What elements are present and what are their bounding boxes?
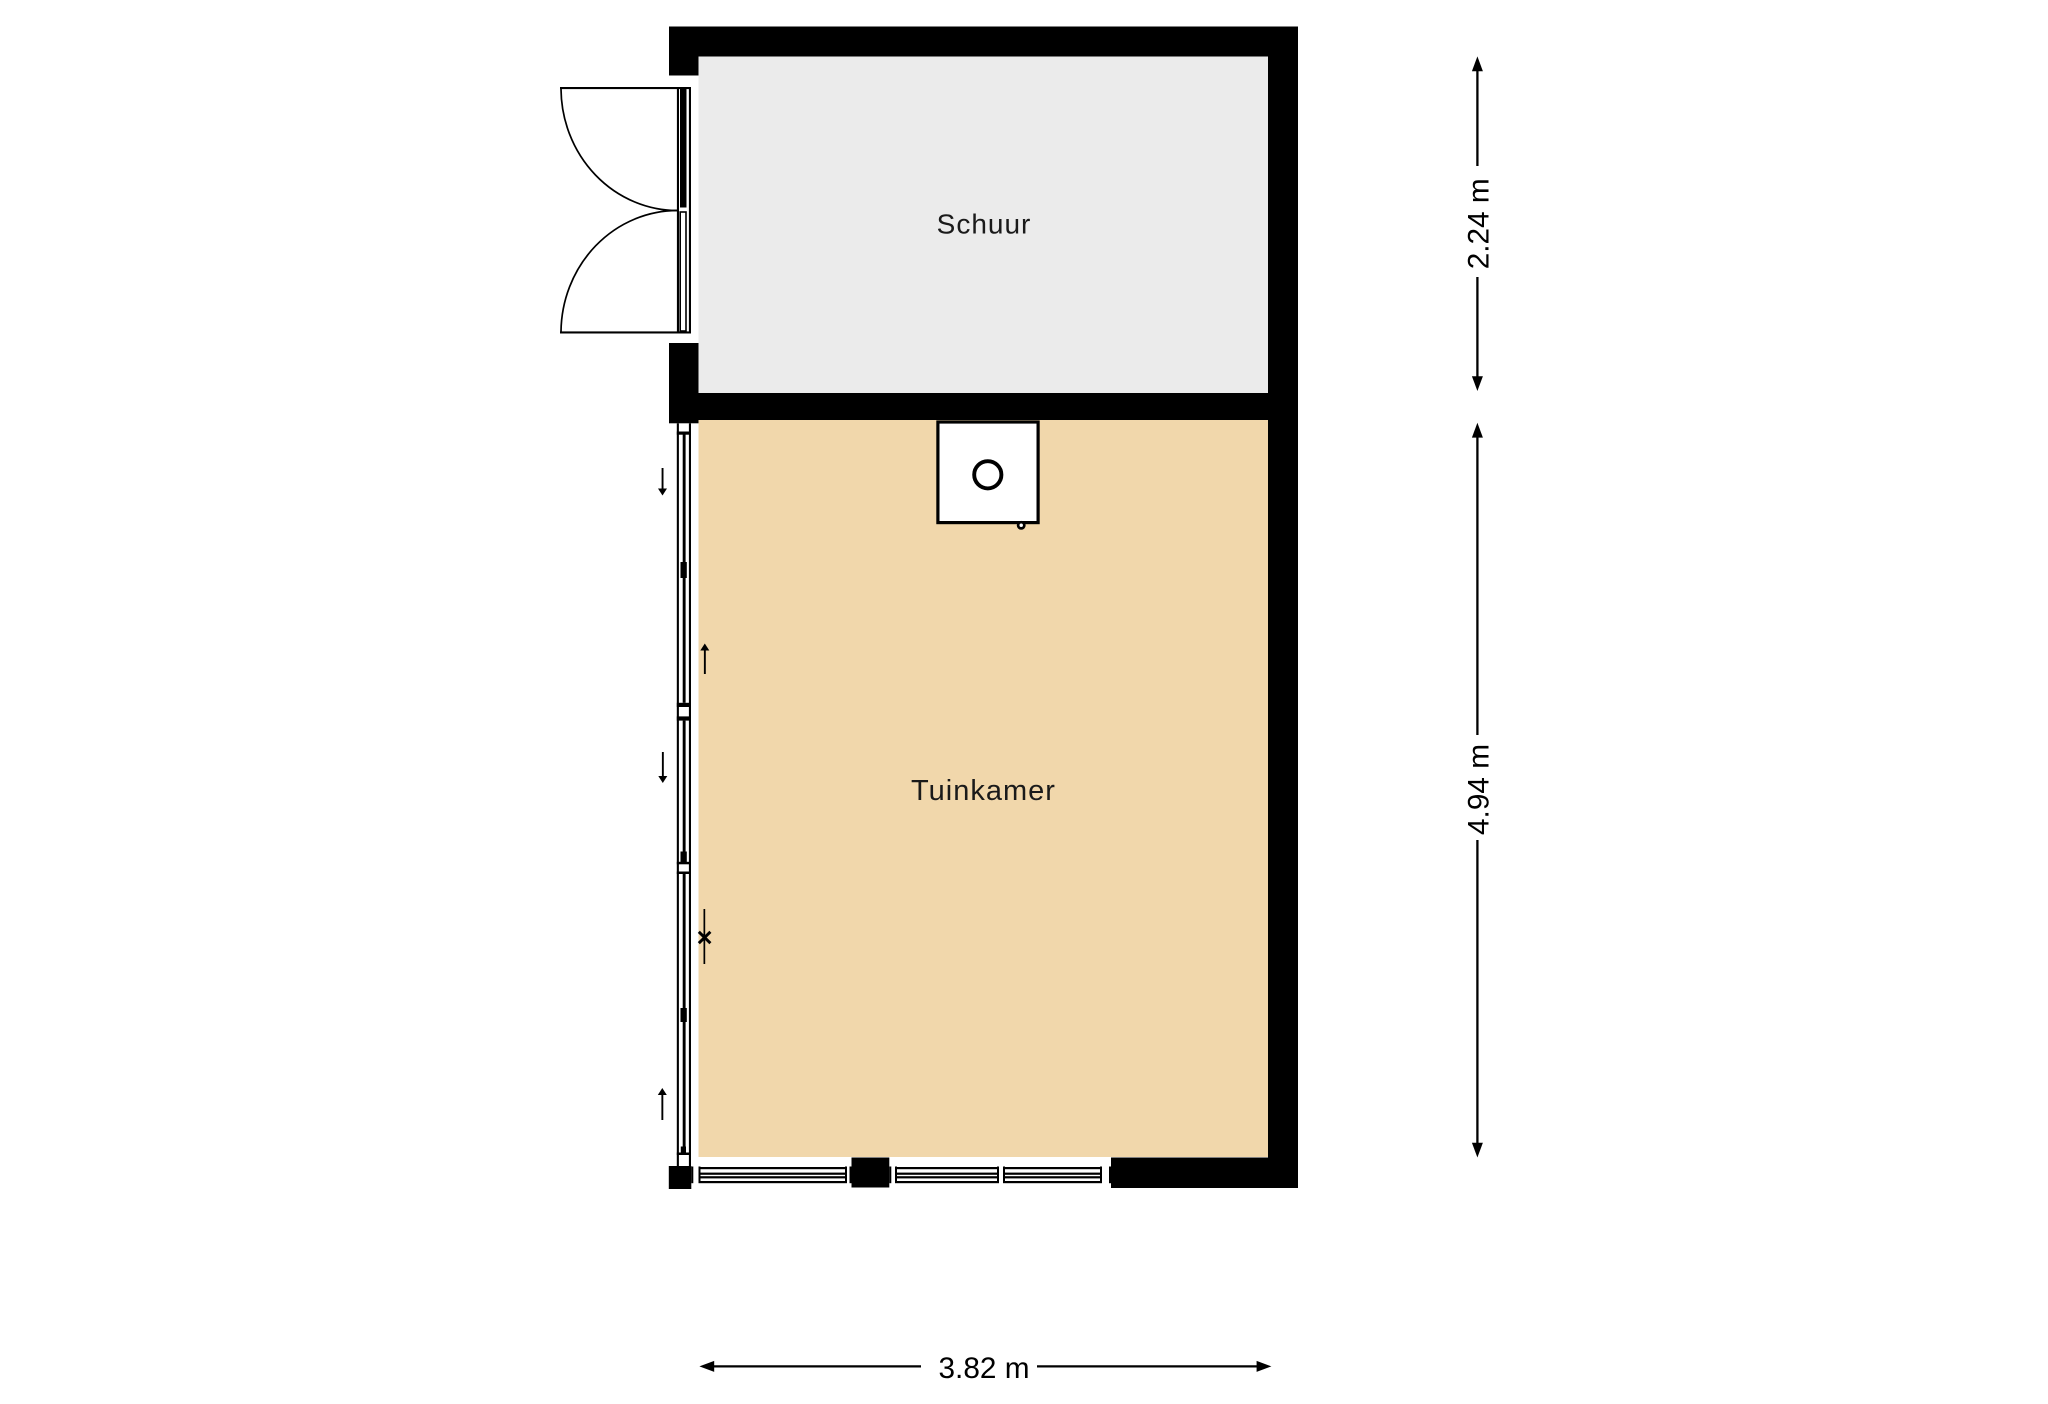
svg-text:Tuinkamer: Tuinkamer: [911, 775, 1056, 807]
svg-text:Schuur: Schuur: [937, 209, 1032, 240]
svg-text:2.24 m: 2.24 m: [1463, 178, 1496, 269]
svg-text:4.94 m: 4.94 m: [1463, 744, 1496, 835]
svg-text:3.82 m: 3.82 m: [939, 1352, 1030, 1385]
